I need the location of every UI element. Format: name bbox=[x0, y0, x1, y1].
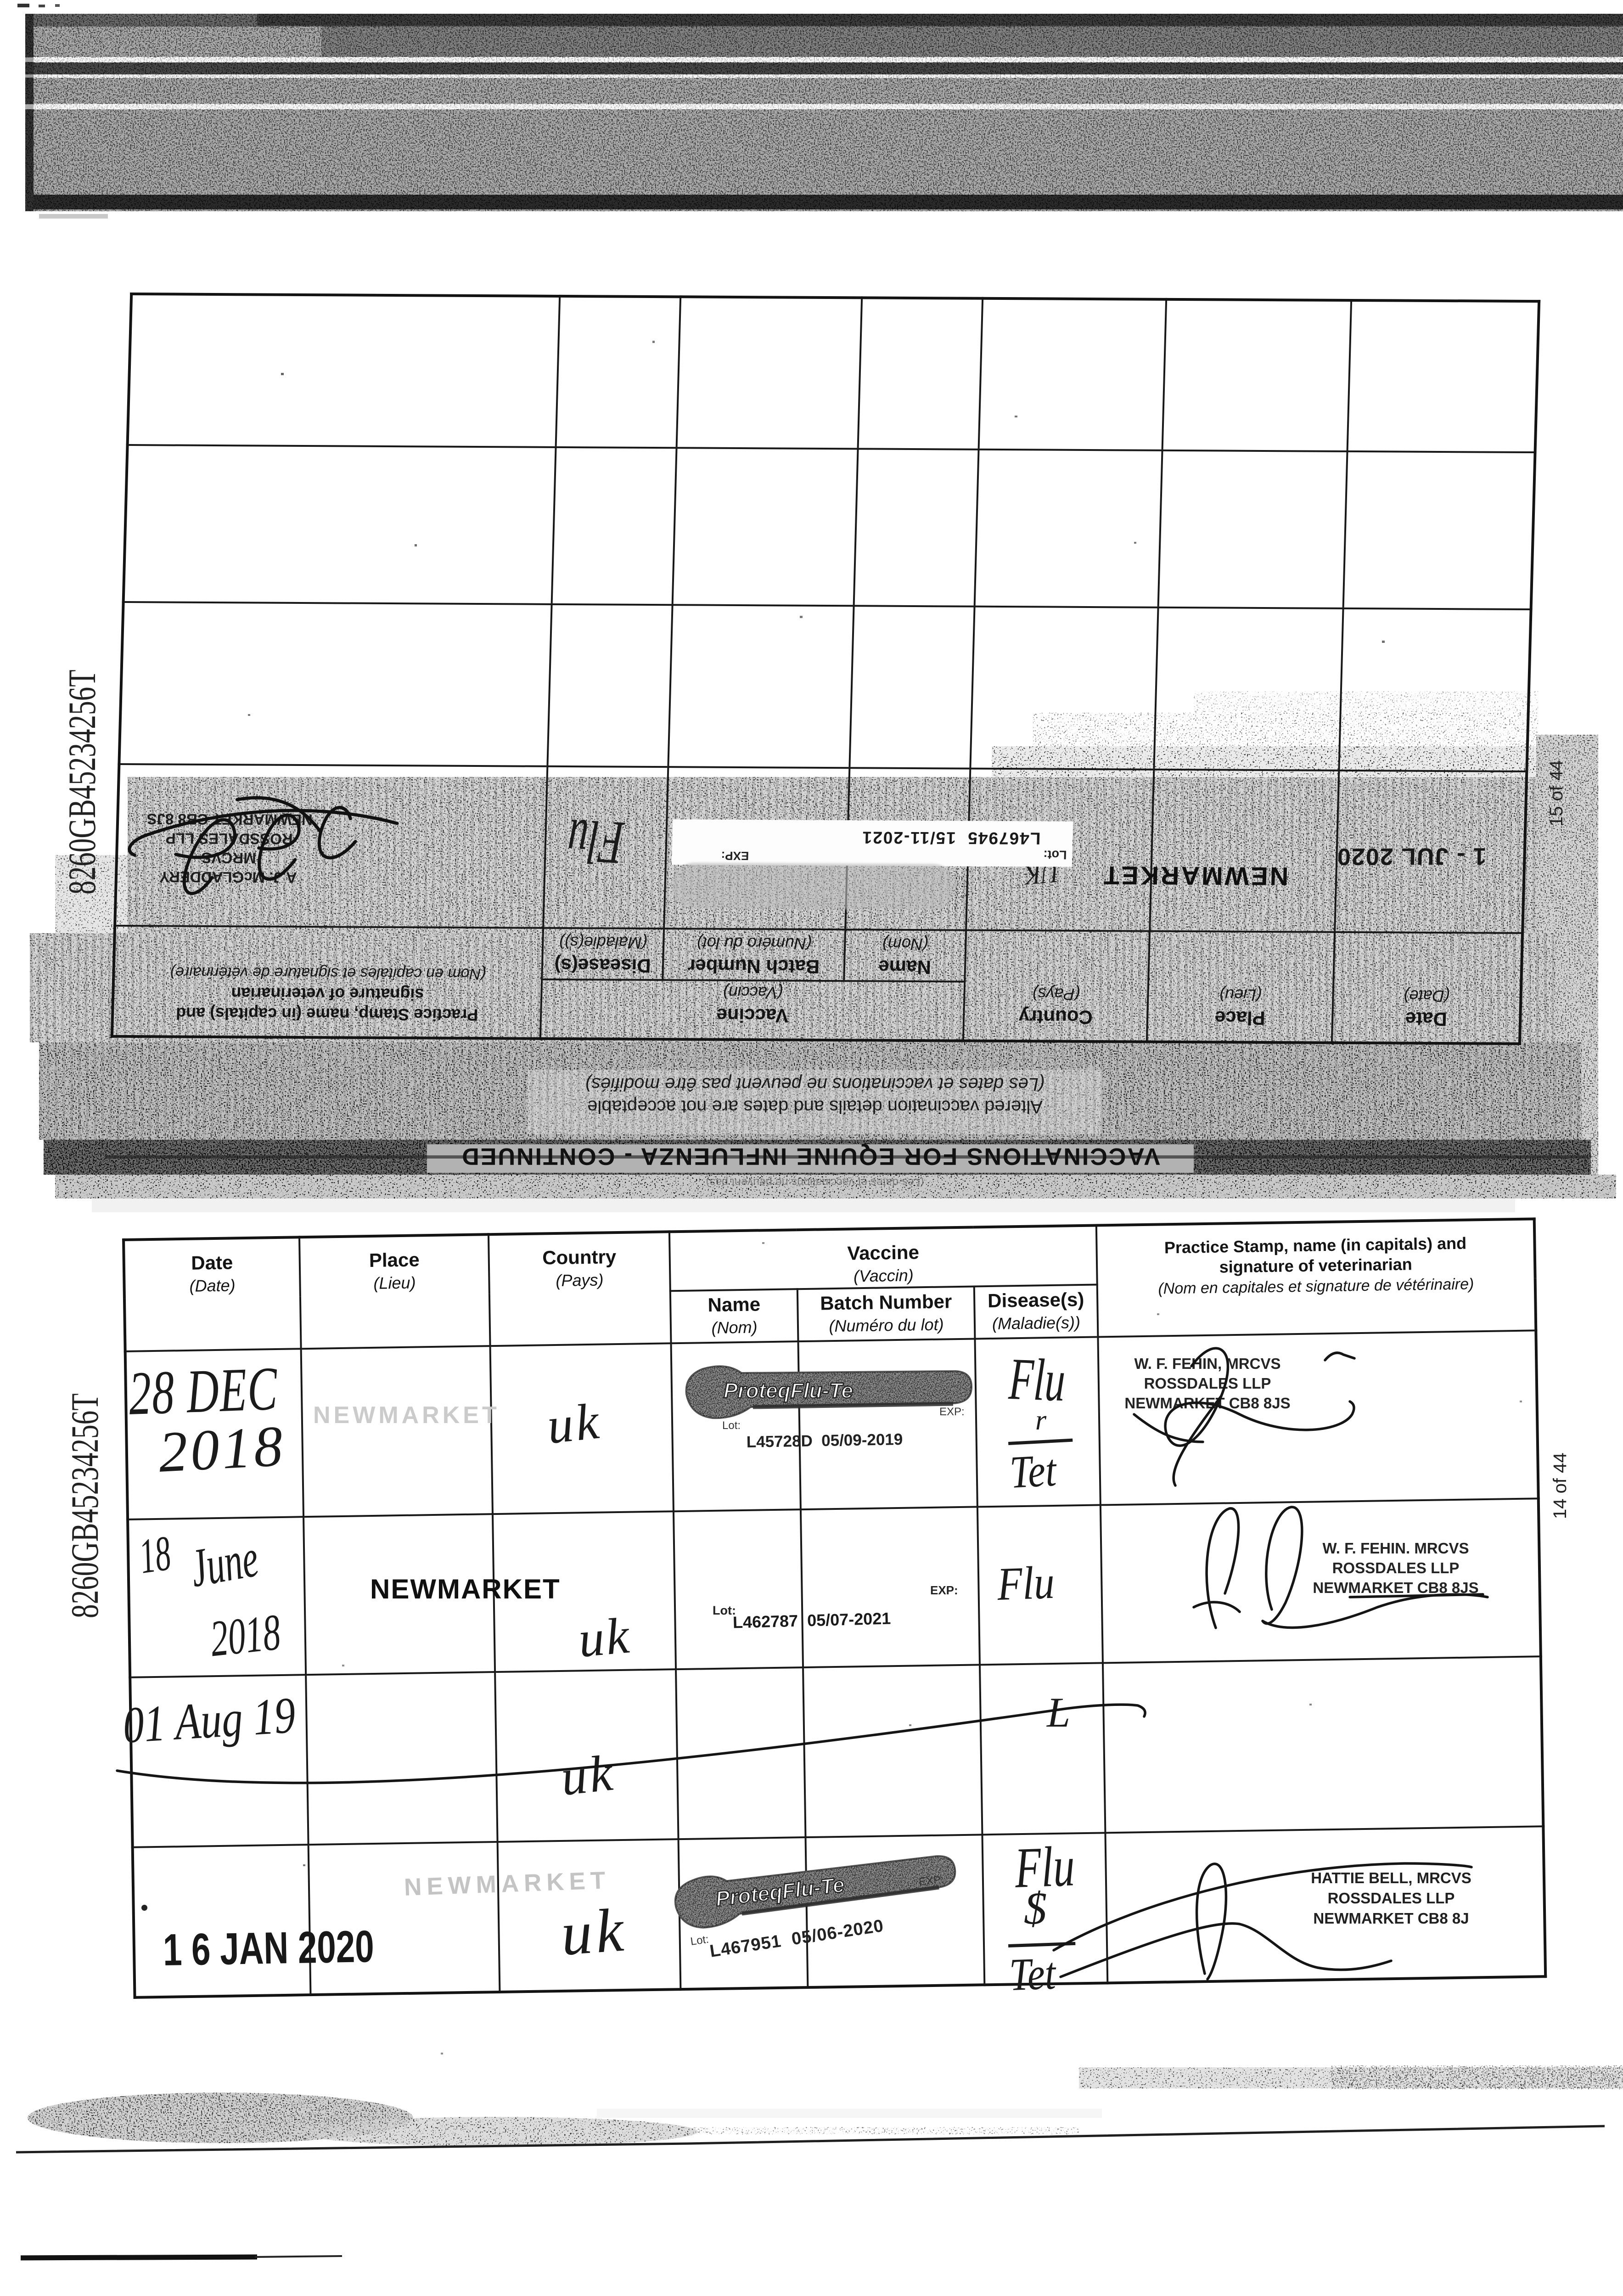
svg-text:Lot:: Lot: bbox=[690, 1933, 709, 1948]
svg-text:L45728D 05/09-2019: L45728D 05/09-2019 bbox=[746, 1430, 903, 1451]
svg-text:ProteqFlu-Te: ProteqFlu-Te bbox=[724, 1379, 853, 1402]
svg-text:L467951 05/06-2020: L467951 05/06-2020 bbox=[708, 1916, 885, 1961]
svg-text:Lot:: Lot: bbox=[722, 1419, 741, 1432]
svg-text:EXP:: EXP: bbox=[939, 1406, 965, 1418]
svg-text:EXP:: EXP: bbox=[918, 1873, 944, 1888]
